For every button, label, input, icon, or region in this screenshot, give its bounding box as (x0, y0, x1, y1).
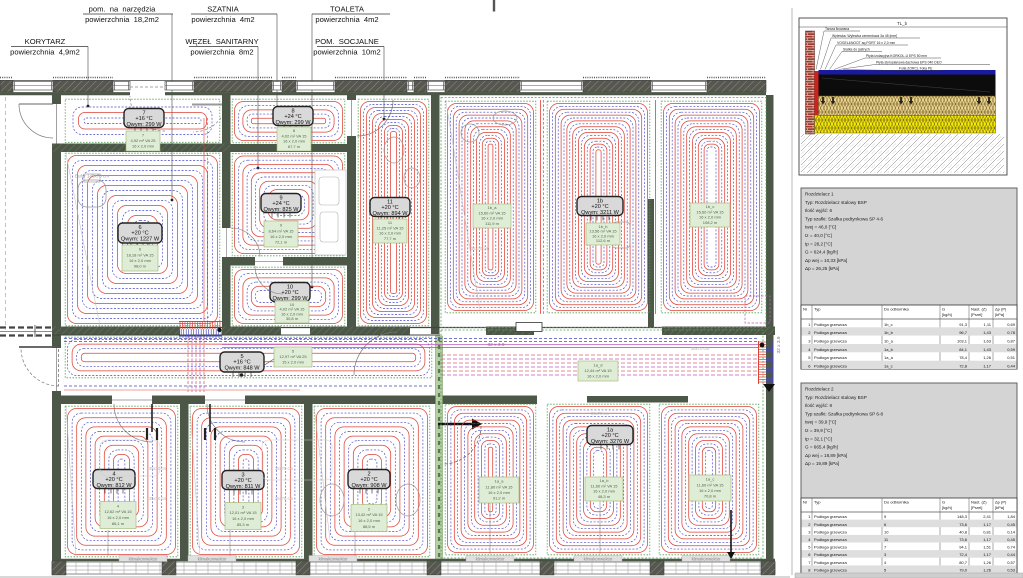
svg-text:Do odbiornika: Do odbiornika (884, 500, 909, 505)
svg-text:1a_c: 1a_c (706, 477, 715, 482)
svg-text:111,9 m: 111,9 m (485, 221, 500, 226)
svg-text:Wylewka: Wylewka cementowa 3a: Wylewka: Wylewka cementowa 3a 45 [mm] (832, 34, 897, 38)
svg-text:16 x 2,0 mm: 16 x 2,0 mm (488, 490, 511, 495)
svg-text:Typ: Typ (814, 500, 821, 505)
svg-text:KORYTARZ: KORYTARZ (25, 37, 66, 46)
svg-text:Tarcza licowana: Tarcza licowana (825, 27, 849, 31)
svg-text:73,6: 73,6 (959, 537, 968, 542)
svg-text:Qwym: 299 W: Qwym: 299 W (126, 122, 162, 128)
svg-text:tz = 40,0 [°C]: tz = 40,0 [°C] (805, 233, 832, 238)
svg-text:18,18 m² VA 15: 18,18 m² VA 15 (126, 252, 154, 257)
svg-text:1,17: 1,17 (983, 552, 992, 557)
svg-text:35x70 cm: 35x70 cm (275, 466, 294, 471)
svg-text:Podłoga grzewcza: Podłoga grzewcza (814, 522, 847, 527)
svg-text:Nr: Nr (803, 500, 808, 505)
svg-text:91,2 m: 91,2 m (493, 496, 506, 501)
svg-text:16 x 2,0 mm: 16 x 2,0 mm (129, 258, 152, 263)
svg-text:1b_a: 1b_a (884, 339, 894, 344)
svg-text:Qwym: 3211 W: Qwym: 3211 W (581, 210, 620, 216)
svg-text:12,62 m² VA 15: 12,62 m² VA 15 (104, 509, 132, 514)
svg-text:11,25 m² VA 15: 11,25 m² VA 15 (377, 225, 405, 230)
svg-text:Płyta izolacyjna KORKOL-U EPS: Płyta izolacyjna KORKOL-U EPS 50 mm (866, 54, 927, 58)
svg-text:Qwym: 894 W: Qwym: 894 W (372, 211, 408, 217)
svg-text:32 x 3.9: 32 x 3.9 (776, 336, 782, 353)
svg-text:Podłoga grzewcza: Podłoga grzewcza (814, 347, 847, 352)
svg-text:Podłoga grzewcza: Podłoga grzewcza (814, 537, 847, 542)
svg-text:16 x 2,0 mm: 16 x 2,0 mm (107, 515, 130, 520)
svg-text:70,8 m: 70,8 m (704, 494, 717, 499)
svg-text:0,44: 0,44 (1007, 364, 1016, 369)
svg-text:11,60 m² VA 15: 11,60 m² VA 15 (697, 482, 725, 487)
svg-text:G: G (942, 307, 945, 312)
svg-text:SZATNIA: SZATNIA (207, 5, 239, 14)
svg-text:79,0: 79,0 (959, 568, 968, 573)
svg-text:0,51: 0,51 (1007, 355, 1016, 360)
svg-text:1,26: 1,26 (983, 560, 992, 565)
svg-text:78,4: 78,4 (959, 355, 968, 360)
svg-text:pom. na narzędzia: pom. na narzędzia (89, 5, 156, 14)
svg-text:72,8: 72,8 (959, 364, 968, 369)
svg-text:Typ szafki: Szafka podtynkowa: Typ szafki: Szafka podtynkowa SP 4-6 (805, 216, 883, 221)
svg-text:1,17: 1,17 (983, 522, 992, 527)
svg-text:0,87: 0,87 (1007, 339, 1016, 344)
svg-text:0,14: 0,14 (1007, 529, 1016, 534)
svg-text:85,3 m: 85,3 m (237, 522, 250, 527)
svg-text:Qwym: 1227 W: Qwym: 1227 W (121, 237, 160, 243)
svg-text:[Przel]: [Przel] (971, 312, 982, 317)
svg-text:Nr: Nr (803, 307, 808, 312)
svg-text:30,8 m: 30,8 m (286, 316, 299, 321)
svg-text:klimakonwektor: klimakonwektor (476, 556, 505, 561)
svg-text:4,02 m² VA 15: 4,02 m² VA 15 (281, 133, 307, 138)
svg-text:15,60 m² VA 15: 15,60 m² VA 15 (478, 210, 506, 215)
svg-text:0,69: 0,69 (1007, 322, 1016, 327)
svg-text:0,45: 0,45 (1007, 537, 1016, 542)
svg-text:16 x 2,0 mm: 16 x 2,0 mm (587, 374, 610, 379)
svg-text:11,60 m² VA 15: 11,60 m² VA 15 (591, 483, 619, 488)
svg-text:klimakonwektor: klimakonwektor (129, 556, 158, 561)
svg-text:klimakonwektor: klimakonwektor (319, 556, 348, 561)
svg-text:1,51: 1,51 (983, 545, 992, 550)
svg-text:0,78: 0,78 (1007, 330, 1016, 335)
svg-text:35x70 cm: 35x70 cm (471, 246, 490, 251)
svg-text:Nast. (Z): Nast. (Z) (971, 500, 987, 505)
svg-text:16 x 2,0 mm: 16 x 2,0 mm (270, 234, 293, 239)
svg-text:1,63: 1,63 (983, 339, 992, 344)
svg-text:4,92 m² VA 25: 4,92 m² VA 25 (130, 138, 156, 143)
svg-text:Do odbiornika: Do odbiornika (884, 307, 909, 312)
svg-text:Podłoga grzewcza: Podłoga grzewcza (814, 545, 847, 550)
svg-text:Δp = 19,89 [kPa]: Δp = 19,89 [kPa] (805, 461, 839, 466)
svg-text:8,64 m² VA 15: 8,64 m² VA 15 (268, 228, 294, 233)
svg-text:67,7 m: 67,7 m (288, 144, 301, 149)
svg-text:klimakonwektor: klimakonwektor (584, 556, 613, 561)
svg-text:73,6: 73,6 (959, 522, 968, 527)
svg-text:TL_b: TL_b (897, 21, 908, 26)
svg-text:94,1: 94,1 (959, 545, 968, 550)
svg-text:Podłoga grzewcza: Podłoga grzewcza (814, 364, 847, 369)
svg-text:84,1: 84,1 (959, 347, 968, 352)
svg-text:Podłoga grzewcza: Podłoga grzewcza (814, 355, 847, 360)
svg-text:1,43: 1,43 (983, 330, 992, 335)
svg-text:Siatka do jastrych: Siatka do jastrych (843, 47, 870, 51)
svg-text:powierzchnia 8m2: powierzchnia 8m2 (190, 48, 253, 57)
svg-text:G = 624,4 [kg/h]: G = 624,4 [kg/h] (805, 250, 838, 255)
svg-text:1,17: 1,17 (983, 537, 992, 542)
svg-text:1b_b: 1b_b (884, 330, 894, 335)
svg-text:TOALETA: TOALETA (330, 5, 365, 14)
svg-text:148,3: 148,3 (957, 514, 968, 519)
svg-text:twej = 46,0 [°C]: twej = 46,0 [°C] (805, 225, 836, 230)
svg-text:72,1 m: 72,1 m (275, 240, 288, 245)
svg-text:12,01 m² VA 15: 12,01 m² VA 15 (229, 510, 257, 515)
svg-text:G = 665,4 [kg/h]: G = 665,4 [kg/h] (805, 445, 838, 450)
svg-text:powierzchnia 4m2: powierzchnia 4m2 (315, 15, 378, 24)
svg-text:powierzchnia 10m2: powierzchnia 10m2 (313, 48, 381, 57)
svg-text:[kg/h]: [kg/h] (942, 312, 952, 317)
svg-text:88,5 m: 88,5 m (363, 524, 376, 529)
svg-text:tp = 28,2 [°C]: tp = 28,2 [°C] (805, 241, 832, 246)
svg-text:16 x 2,0 mm: 16 x 2,0 mm (232, 516, 255, 521)
svg-text:Δp wej = 18,89 [kPa]: Δp wej = 18,89 [kPa] (805, 453, 847, 458)
svg-text:tp = 32,1 [°C]: tp = 32,1 [°C] (805, 436, 832, 441)
svg-text:0,81: 0,81 (983, 529, 992, 534)
svg-text:Qwym: 3276 W: Qwym: 3276 W (591, 439, 630, 445)
svg-text:Podłoga grzewcza: Podłoga grzewcza (814, 529, 847, 534)
svg-text:91,3: 91,3 (959, 322, 968, 327)
svg-text:1,84: 1,84 (1007, 514, 1016, 519)
svg-text:Podłoga grzewcza: Podłoga grzewcza (814, 330, 847, 335)
svg-text:G: G (942, 500, 945, 505)
svg-text:112,6 m: 112,6 m (596, 238, 611, 243)
svg-text:Qwym: 908 W: Qwym: 908 W (351, 483, 387, 489)
svg-text:Δp = 26,25 [kPa]: Δp = 26,25 [kPa] (805, 266, 839, 271)
svg-text:32 x 3.9: 32 x 3.9 (487, 342, 504, 348)
svg-text:VOGEL&NOOT aq.PORT 16 x 2,0 mm: VOGEL&NOOT aq.PORT 16 x 2,0 mm (837, 41, 895, 45)
svg-text:Qwym: 299 W: Qwym: 299 W (275, 120, 311, 126)
svg-text:Qwym: 812 W: Qwym: 812 W (96, 483, 132, 489)
svg-text:12,44 m² VA 15: 12,44 m² VA 15 (584, 368, 612, 373)
svg-text:40,8: 40,8 (959, 529, 968, 534)
svg-text:2,41: 2,41 (983, 514, 992, 519)
svg-text:[kg/h]: [kg/h] (942, 505, 952, 510)
svg-text:80,7: 80,7 (959, 560, 968, 565)
svg-text:Qwym: 811 W: Qwym: 811 W (226, 484, 261, 490)
svg-text:11,80 m² VA 15: 11,80 m² VA 15 (486, 484, 514, 489)
svg-text:Rozdzielacz 1: Rozdzielacz 1 (805, 192, 834, 197)
svg-text:[kPa]: [kPa] (995, 312, 1004, 317)
svg-text:1,17: 1,17 (983, 364, 992, 369)
svg-text:powierzchnia 18,2m2: powierzchnia 18,2m2 (85, 15, 159, 24)
svg-text:[Przel]: [Przel] (971, 505, 982, 510)
svg-text:klimakonwektor: klimakonwektor (198, 556, 227, 561)
svg-text:1a_d: 1a_d (594, 363, 603, 368)
svg-text:1a_a: 1a_a (495, 479, 505, 484)
svg-text:Δp (P): Δp (P) (995, 307, 1007, 312)
svg-text:Folia ZORCL Folia PE: Folia ZORCL Folia PE (899, 66, 933, 70)
svg-text:Podłoga grzewcza: Podłoga grzewcza (814, 322, 847, 327)
svg-text:0,74: 0,74 (1007, 545, 1016, 550)
svg-text:Ilość wyjść: 6: Ilość wyjść: 6 (805, 208, 833, 213)
svg-text:1a_c: 1a_c (884, 364, 893, 369)
svg-text:Typ szafki: Szafka podtynkowa: Typ szafki: Szafka podtynkowa SP 6-8 (805, 411, 883, 416)
svg-text:15 x 2,0 mm: 15 x 2,0 mm (282, 360, 305, 365)
svg-text:twej = 39,9 [°C]: twej = 39,9 [°C] (805, 420, 836, 425)
svg-text:Δp wej = 10,33 [kPa]: Δp wej = 10,33 [kPa] (805, 258, 847, 263)
svg-text:Podłoga grzewcza: Podłoga grzewcza (814, 568, 847, 573)
svg-text:POM. SOCJALNE: POM. SOCJALNE (315, 37, 379, 46)
svg-text:48,3 m: 48,3 m (598, 494, 611, 499)
svg-text:1b_c: 1b_c (884, 322, 893, 327)
svg-text:powierzchnia 4m2: powierzchnia 4m2 (191, 15, 254, 24)
svg-text:Podłoga grzewcza: Podłoga grzewcza (814, 552, 847, 557)
svg-text:powierzchnia 4,9m2: powierzchnia 4,9m2 (10, 48, 80, 57)
svg-text:1,11: 1,11 (984, 322, 992, 327)
svg-text:16 x 2,0 mm: 16 x 2,0 mm (132, 144, 155, 149)
svg-text:Nast. (Z): Nast. (Z) (971, 307, 987, 312)
svg-text:35x70 cm: 35x70 cm (275, 496, 294, 501)
svg-text:98,0 m: 98,0 m (134, 264, 147, 269)
svg-text:35x70 cm: 35x70 cm (591, 411, 610, 416)
svg-text:klimakonwektor: klimakonwektor (692, 556, 721, 561)
svg-text:35x70 cm: 35x70 cm (149, 466, 168, 471)
svg-text:96,7: 96,7 (959, 330, 968, 335)
svg-text:[kPa]: [kPa] (995, 505, 1004, 510)
svg-text:15,60 m² VA 15: 15,60 m² VA 15 (696, 209, 724, 214)
svg-text:1a_a: 1a_a (884, 355, 894, 360)
svg-text:Podłoga grzewcza: Podłoga grzewcza (814, 514, 847, 519)
svg-text:Ilość wyjść: 8: Ilość wyjść: 8 (805, 403, 833, 408)
svg-text:tz = 39,9 [°C]: tz = 39,9 [°C] (805, 428, 832, 433)
svg-text:Rozdzielacz 2: Rozdzielacz 2 (805, 387, 834, 392)
svg-text:Podłoga grzewcza: Podłoga grzewcza (814, 560, 847, 565)
svg-text:0,57: 0,57 (1007, 560, 1016, 565)
svg-text:13,42 m² VA 15: 13,42 m² VA 15 (355, 512, 383, 517)
svg-text:103,1: 103,1 (957, 339, 968, 344)
svg-text:Bufor 140x70 cm: Bufor 140x70 cm (75, 174, 109, 179)
svg-text:0,59: 0,59 (1007, 347, 1016, 352)
svg-text:10: 10 (884, 529, 889, 534)
svg-text:Δp (P): Δp (P) (995, 500, 1007, 505)
svg-text:Podłoga grzewcza: Podłoga grzewcza (814, 339, 847, 344)
svg-text:WĘZEŁ SANITARNY: WĘZEŁ SANITARNY (185, 37, 258, 46)
svg-text:77,7 m: 77,7 m (384, 236, 397, 241)
svg-text:1,26: 1,26 (983, 568, 992, 573)
svg-text:1a_b: 1a_b (884, 347, 894, 352)
svg-text:86,1 m: 86,1 m (112, 521, 125, 526)
svg-text:12,97 m² VA 25: 12,97 m² VA 25 (279, 354, 307, 359)
svg-text:1,43: 1,43 (983, 347, 992, 352)
svg-text:Typ: Rozdzielacz stalowy BSP: Typ: Rozdzielacz stalowy BSP (805, 395, 867, 400)
svg-text:Typ: Rozdzielacz stalowy BSP: Typ: Rozdzielacz stalowy BSP (805, 200, 867, 205)
svg-text:0,44: 0,44 (1007, 552, 1016, 557)
svg-text:35x70 cm: 35x70 cm (149, 496, 168, 501)
svg-text:1,26: 1,26 (983, 355, 992, 360)
svg-text:Typ: Typ (814, 307, 821, 312)
svg-text:72,4: 72,4 (959, 552, 968, 557)
svg-text:35x70 cm: 35x70 cm (691, 346, 710, 351)
svg-text:Płyta styropianowa dachowa EPS: Płyta styropianowa dachowa EPS 040 DEO (876, 60, 942, 64)
svg-text:108,2 m: 108,2 m (703, 220, 718, 225)
svg-text:0,53: 0,53 (1007, 568, 1016, 573)
svg-text:16 x 2,0 mm: 16 x 2,0 mm (699, 488, 722, 493)
svg-text:Qwym: 825 W: Qwym: 825 W (263, 207, 299, 213)
svg-text:0,45: 0,45 (1007, 522, 1016, 527)
svg-text:16 x 2,0 mm: 16 x 2,0 mm (358, 518, 381, 523)
svg-text:Qwym: 848 W: Qwym: 848 W (224, 366, 260, 372)
